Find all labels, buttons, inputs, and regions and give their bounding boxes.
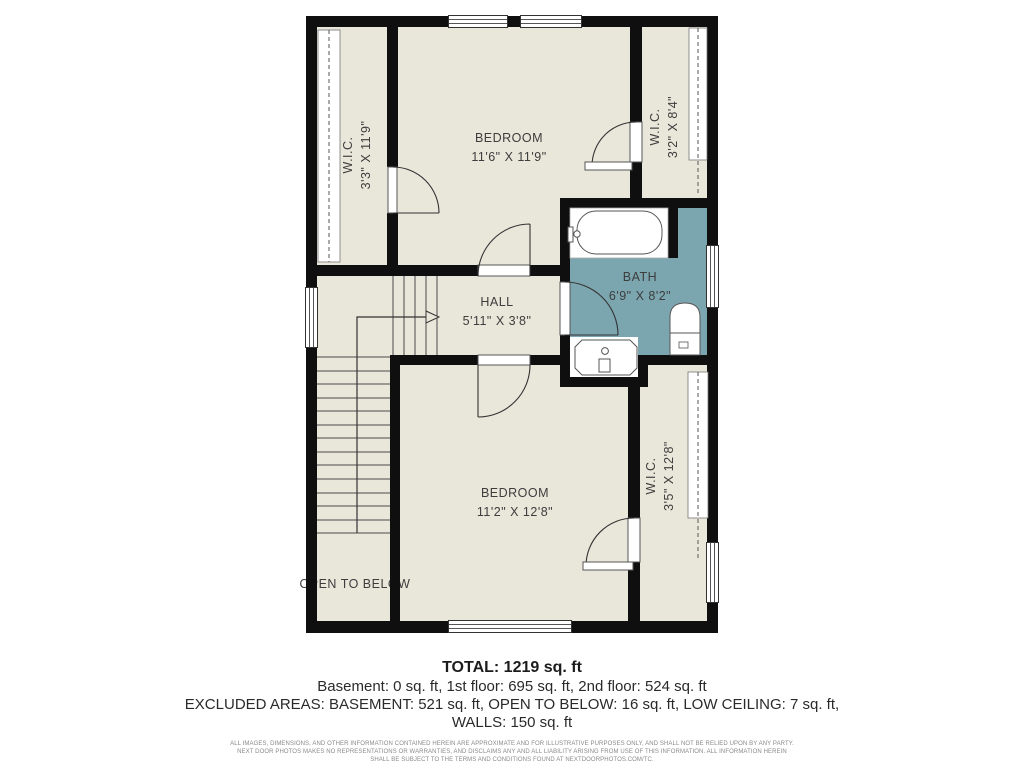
window bbox=[706, 245, 719, 308]
wall bbox=[306, 265, 478, 276]
room-label-bedroom-1: BEDROOM 11'6" X 11'9" bbox=[471, 129, 546, 167]
room-dims: 5'11" X 3'8" bbox=[463, 312, 532, 331]
room-name: BEDROOM bbox=[477, 484, 553, 503]
room-name: W.I.C. bbox=[339, 121, 357, 190]
excluded-areas: EXCLUDED AREAS: BASEMENT: 521 sq. ft, OP… bbox=[0, 696, 1024, 714]
room-dims: 11'6" X 11'9" bbox=[471, 148, 546, 167]
window bbox=[448, 620, 572, 633]
excluded-areas-walls: WALLS: 150 sq. ft bbox=[0, 714, 1024, 732]
disclaimer-line: ALL IMAGES, DIMENSIONS, AND OTHER INFORM… bbox=[0, 740, 1024, 748]
room-label-wic-1: W.I.C. 3'3" X 11'9" bbox=[339, 121, 375, 190]
wall bbox=[630, 26, 642, 122]
floor-plan: OPEN TO BELOW bbox=[306, 15, 718, 633]
room-name: W.I.C. bbox=[646, 96, 664, 158]
disclaimer-line: SHALL BE SUBJECT TO THE TERMS AND CONDIT… bbox=[0, 756, 1024, 764]
wall bbox=[707, 16, 718, 633]
window bbox=[305, 287, 318, 348]
wall bbox=[390, 355, 478, 365]
wall bbox=[560, 198, 570, 282]
room-dims: 3'5" X 12'8" bbox=[660, 441, 678, 511]
wall bbox=[306, 16, 718, 27]
room-name: BEDROOM bbox=[471, 129, 546, 148]
page: { "plan": { "rooms": [ { "name": "W.I.C.… bbox=[0, 0, 1024, 768]
wall bbox=[530, 355, 570, 365]
room-name: HALL bbox=[463, 293, 532, 312]
window bbox=[448, 15, 508, 28]
room-dims: 11'2" X 12'8" bbox=[477, 503, 553, 522]
area-summary: TOTAL: 1219 sq. ft Basement: 0 sq. ft, 1… bbox=[0, 658, 1024, 732]
room-label-wic-2: W.I.C. 3'2" X 8'4" bbox=[646, 96, 682, 158]
wall bbox=[630, 162, 642, 208]
room-name: W.I.C. bbox=[642, 441, 660, 511]
room-dims: 3'3" X 11'9" bbox=[357, 121, 375, 190]
room-dims: 3'2" X 8'4" bbox=[664, 96, 682, 158]
floor-areas: Basement: 0 sq. ft, 1st floor: 695 sq. f… bbox=[0, 678, 1024, 696]
total-area: TOTAL: 1219 sq. ft bbox=[0, 658, 1024, 678]
room-name: BATH bbox=[609, 268, 671, 287]
room-label-wic-3: W.I.C. 3'5" X 12'8" bbox=[642, 441, 678, 511]
wall bbox=[387, 26, 398, 167]
wall bbox=[628, 562, 640, 622]
room-label-hall: HALL 5'11" X 3'8" bbox=[463, 293, 532, 331]
window bbox=[706, 542, 719, 603]
disclaimer-line: NEXT DOOR PHOTOS MAKES NO REPRESENTATION… bbox=[0, 748, 1024, 756]
wall bbox=[638, 355, 712, 365]
wall bbox=[628, 355, 640, 518]
room-label-bath: BATH 6'9" X 8'2" bbox=[609, 268, 671, 306]
wall bbox=[668, 198, 678, 258]
room-label-bedroom-2: BEDROOM 11'2" X 12'8" bbox=[477, 484, 553, 522]
wall bbox=[390, 355, 400, 622]
window bbox=[520, 15, 582, 28]
room-dims: 6'9" X 8'2" bbox=[609, 287, 671, 306]
disclaimer: ALL IMAGES, DIMENSIONS, AND OTHER INFORM… bbox=[0, 740, 1024, 764]
